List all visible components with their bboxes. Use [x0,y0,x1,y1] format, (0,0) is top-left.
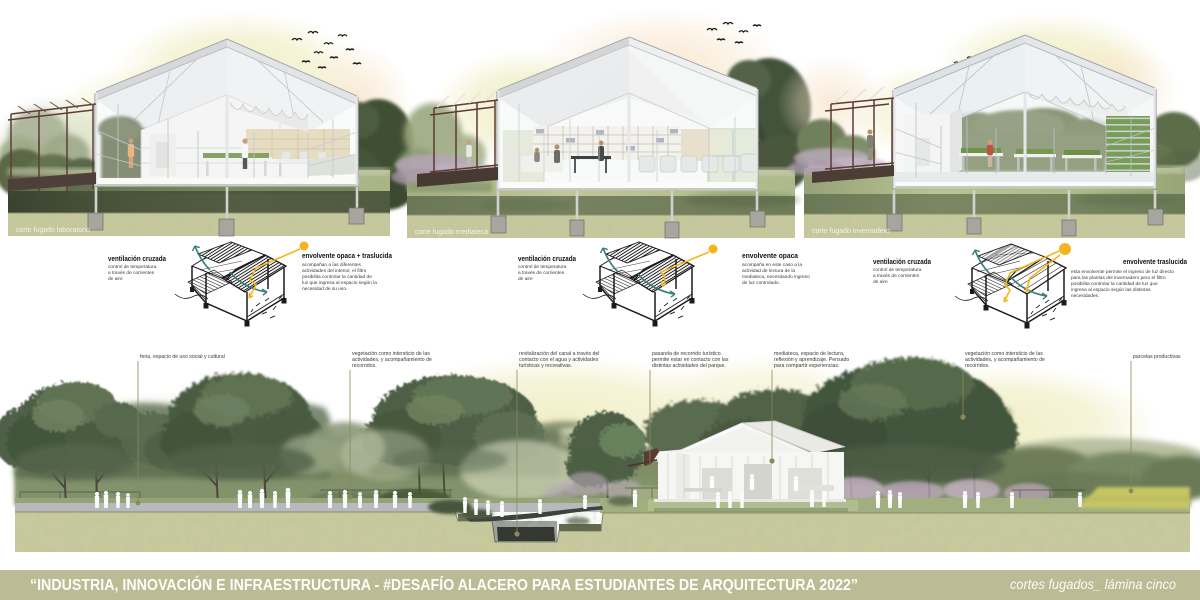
svg-text:de aire: de aire [108,276,123,282]
svg-text:control de temperatura: control de temperatura [108,264,157,270]
svg-text:envolvente opaca + traslucida: envolvente opaca + traslucida [302,251,393,260]
svg-text:de aire: de aire [873,279,888,285]
svg-text:posibilita controlar la cantid: posibilita controlar la cantidad de [302,274,372,280]
svg-text:esta envolvente permite el ing: esta envolvente permite el ingreso de lu… [1071,269,1174,275]
svg-text:luz que ingresa al espacio seg: luz que ingresa al espacio según la [302,280,377,286]
svg-text:ventilación cruzada: ventilación cruzada [108,254,167,263]
svg-text:control de temperatura: control de temperatura [873,267,922,273]
svg-text:envolvente traslucida: envolvente traslucida [1123,257,1188,266]
svg-text:mediateca, necesitando ingreso: mediateca, necesitando ingreso [742,274,810,280]
svg-text:ventilación cruzada: ventilación cruzada [518,254,577,263]
svg-text:cortes fugados_ lámina cinco: cortes fugados_ lámina cinco [1010,577,1176,592]
svg-text:corte fugado laboratorio: corte fugado laboratorio [16,227,90,234]
svg-text:para las plantas del invernade: para las plantas del invernadero pero el… [1071,275,1166,281]
svg-text:ingresa al espacio según las d: ingresa al espacio según las distintas [1071,287,1151,293]
svg-text:a través de corrientes: a través de corrientes [873,273,920,279]
svg-text:feria, espacio de uso social y: feria, espacio de uso social y cultural [140,354,225,360]
svg-text:ventilación cruzada: ventilación cruzada [873,257,932,266]
svg-text:acompaña en este caso a la: acompaña en este caso a la [742,262,802,268]
svg-text:a través de corrientes: a través de corrientes [108,270,155,276]
svg-text:actividades del interior, el f: actividades del interior, el filtro [302,268,367,274]
svg-text:actividad de lectura de la: actividad de lectura de la [742,268,795,274]
svg-text:necesidad de su uso.: necesidad de su uso. [302,286,347,292]
svg-text:a través de corrientes: a través de corrientes [518,270,565,276]
svg-text:acompañan a las diferentes: acompañan a las diferentes [302,262,362,268]
svg-text:posibilita controlar la cantid: posibilita controlar la cantidad de luz … [1071,281,1158,287]
svg-text:turísticas y recreativas.: turísticas y recreativas. [519,363,572,369]
svg-text:distintas actividades del parq: distintas actividades del parque. [652,363,726,369]
svg-text:control de temperatura: control de temperatura [518,264,567,270]
svg-text:de luz controlado.: de luz controlado. [742,280,780,286]
svg-text:corte fugado mediateca: corte fugado mediateca [415,229,488,236]
svg-text:parcelas productivas: parcelas productivas [1133,354,1181,360]
svg-text:recorridos.: recorridos. [965,363,990,369]
svg-text:para compartir experiencias.: para compartir experiencias. [774,363,839,369]
svg-text:necesidades.: necesidades. [1071,293,1099,299]
svg-text:“INDUSTRIA, INNOVACIÓN E INFRA: “INDUSTRIA, INNOVACIÓN E INFRAESTRUCTURA… [30,576,858,594]
svg-text:de aire: de aire [518,276,533,282]
svg-text:corte fugado invernadero: corte fugado invernadero [812,228,890,235]
svg-text:recorridos.: recorridos. [352,363,377,369]
svg-text:envolvente opaca: envolvente opaca [742,251,799,260]
